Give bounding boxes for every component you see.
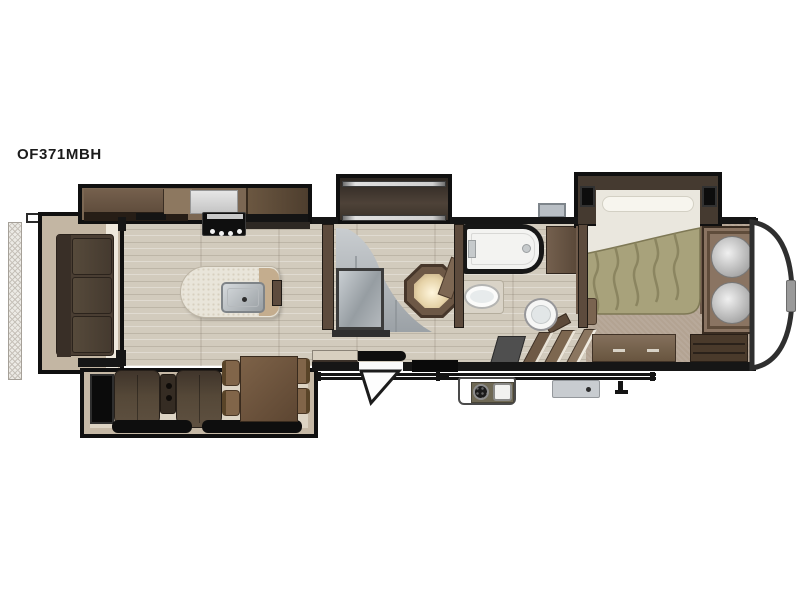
dinette-chair (222, 390, 240, 416)
range-hood (207, 214, 243, 219)
cupholder-console (160, 374, 176, 414)
model-number-label: OF371MBH (17, 146, 102, 163)
tv-icon (136, 213, 166, 220)
kitchen-island (180, 266, 280, 318)
sofa-cushion (72, 316, 112, 353)
floorplan-canvas: OF371MBH (0, 0, 800, 600)
dinette-table-icon (240, 356, 298, 422)
counter-stub (272, 280, 282, 306)
bunkroom-left-wall (322, 224, 334, 330)
sofa-cushion (72, 277, 112, 314)
window-bar (412, 360, 458, 372)
top-wall (312, 217, 338, 224)
refrigerator-front (246, 214, 308, 222)
bathroom-sink-icon (464, 284, 500, 309)
tub-faucet (468, 240, 476, 258)
top-wall (450, 217, 578, 224)
cupholder (166, 395, 172, 401)
awning-end (316, 372, 321, 381)
grab-handle-icon (615, 390, 628, 394)
sofa-icon (56, 234, 114, 356)
cupholder (166, 383, 172, 389)
seat-seam (137, 375, 138, 423)
wardrobe-drawers (690, 334, 748, 362)
bunk-slide-out (336, 174, 452, 224)
drawer-line (693, 352, 745, 354)
toilet-icon (524, 298, 558, 331)
burner-dot (210, 229, 215, 234)
counter-front-dark (246, 222, 310, 229)
drawer-line (693, 343, 745, 345)
drawer-handle (647, 349, 659, 352)
rear-porch-hatch-icon (8, 222, 22, 380)
window-bump (538, 203, 566, 218)
faucet-dot (242, 297, 247, 302)
pillow (602, 196, 694, 212)
burner-dot (219, 231, 224, 236)
range-icon (202, 212, 246, 236)
bunk-rail (342, 181, 446, 187)
bath-left-wall (454, 224, 464, 328)
mirrored-door-icon (336, 268, 384, 330)
utility-box-icon (552, 380, 600, 398)
bedroom-window-icon (702, 186, 717, 207)
refrigerator-icon (246, 188, 308, 216)
sink-bowl (470, 290, 494, 303)
hitch-tab (786, 280, 796, 312)
outdoor-burner-icon (473, 384, 489, 400)
tub-shower-icon (462, 224, 544, 274)
outdoor-kitchen-icon (458, 377, 516, 405)
rear-wall-stub (118, 217, 126, 231)
toilet-seat (531, 305, 551, 324)
dinette-chair (222, 360, 240, 386)
kitchen-counter (164, 189, 192, 214)
bath-right-wall (578, 224, 588, 328)
fireplace-icon (90, 374, 114, 424)
seat-seam (199, 375, 200, 423)
sofa-back (57, 235, 71, 357)
awning-arm (440, 375, 449, 379)
utility-dot (586, 387, 591, 392)
awning-end (650, 372, 655, 381)
microwave-icon (190, 190, 238, 214)
drawer-handle (613, 349, 625, 352)
shower-drain-dot (522, 244, 531, 253)
floor-mat (112, 420, 192, 433)
burner-dot (228, 231, 233, 236)
bedroom-window-icon (580, 186, 595, 207)
sofa-cushion (72, 238, 112, 275)
entry-step-icon (352, 368, 404, 406)
door-track (332, 330, 390, 337)
island-sink-icon (221, 282, 265, 313)
floor-mat (352, 351, 406, 361)
burner-dot (237, 229, 242, 234)
rear-bottom-wall (78, 358, 124, 367)
outdoor-sink-icon (493, 383, 512, 401)
dresser-icon (592, 334, 676, 362)
bunk-rail (342, 215, 446, 221)
